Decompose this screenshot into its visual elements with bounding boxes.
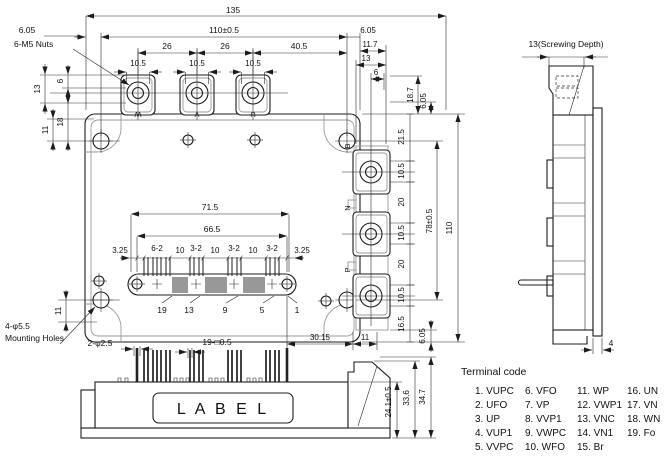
terminal-label-p: P xyxy=(343,267,352,272)
power-module-outline-drawing: W V U B N P xyxy=(0,0,671,460)
dim-front-347: 34.7 xyxy=(418,389,427,405)
note-mounting-holes-1: 4-φ5.5 xyxy=(5,321,30,331)
dim-bot-11: 11 xyxy=(361,333,370,342)
tc-8: 8. VVP1 xyxy=(525,414,562,425)
dim-rc-605t: 6.05 xyxy=(419,93,428,109)
dim-baseplate-thickness: 4 xyxy=(609,338,614,348)
dim-lc-11t: 11 xyxy=(41,125,50,134)
dim-overall-width: 135 xyxy=(226,5,240,15)
dim-pin-665: 66.5 xyxy=(204,224,221,234)
dim-row-62: 6-2 xyxy=(151,244,163,253)
side-view: 13(Screwing Depth) 4 xyxy=(519,39,615,354)
dim-edge-left: 6.05 xyxy=(19,25,36,35)
tc-17: 17. VN xyxy=(627,400,658,411)
dim-overall-height: 110 xyxy=(445,221,454,234)
dim-bot-605: 6.05 xyxy=(418,328,427,344)
dim-pin-715: 71.5 xyxy=(202,202,219,212)
dim-rc-215: 21.5 xyxy=(397,129,406,145)
pin-number-1: 1 xyxy=(295,305,300,315)
tc-15: 15. Br xyxy=(577,442,604,453)
dim-lc-11b: 11 xyxy=(54,306,63,315)
dim-rc-105a: 10.5 xyxy=(397,163,406,179)
side-housing xyxy=(553,115,593,330)
dim-guide-pins: 2-φ2.5 xyxy=(88,338,113,348)
dim-row-10a: 10 xyxy=(176,246,185,255)
dim-tr-117: 11.7 xyxy=(363,40,379,49)
tc-11: 11. WP xyxy=(577,386,609,397)
dim-rc-20a: 20 xyxy=(397,197,406,206)
label-text: L A B E L xyxy=(177,401,269,418)
note-mounting-holes-2: Mounting Holes xyxy=(5,333,64,343)
dim-rc-105b: 10.5 xyxy=(397,225,406,241)
tc-14: 14. VN1 xyxy=(577,428,614,439)
pin-number-9: 9 xyxy=(223,305,228,315)
tc-3: 3. UP xyxy=(475,414,500,425)
dim-row-32b: 3-2 xyxy=(228,244,240,253)
tc-12: 12. VWP1 xyxy=(577,400,622,411)
tc-1: 1. VUPC xyxy=(475,386,514,397)
dim-nut-w-3: 10.5 xyxy=(245,59,261,68)
dim-row-32a: 3-2 xyxy=(190,244,202,253)
tc-16: 16. UN xyxy=(627,386,658,397)
tc-19: 19. Fo xyxy=(627,428,656,439)
terminal-label-b: B xyxy=(343,143,352,148)
note-m5-nuts: 6-M5 Nuts xyxy=(14,39,53,49)
dim-nut-w-2: 10.5 xyxy=(189,59,205,68)
tc-6: 6. VFO xyxy=(525,386,557,397)
dim-pitch-wv: 26 xyxy=(162,41,172,51)
tc-7: 7. VP xyxy=(525,400,550,411)
side-baseplate xyxy=(593,108,602,336)
dim-rc-187: 18.7 xyxy=(406,87,415,103)
terminal-label-v: V xyxy=(194,110,199,119)
tc-2: 2. UFO xyxy=(475,400,507,411)
dim-u-to-hole: 40.5 xyxy=(291,41,308,51)
dim-row-10c: 10 xyxy=(249,246,258,255)
dim-front-336: 33.6 xyxy=(402,390,411,406)
front-left-cap xyxy=(81,390,95,428)
dim-rc-20b: 20 xyxy=(397,259,406,268)
tc-13: 13. VNC xyxy=(577,414,615,425)
dim-lc-6: 6 xyxy=(56,78,65,83)
pin-number-19: 19 xyxy=(157,305,167,315)
dim-pitch-vu: 26 xyxy=(220,41,230,51)
terminal-code-title: Terminal code xyxy=(461,366,527,378)
tc-5: 5. VVPC xyxy=(475,442,513,453)
dim-row-325b: 3.25 xyxy=(294,246,310,255)
dim-hole-pitch-v: 78±0.5 xyxy=(425,208,434,233)
terminal-code-table: Terminal code 1. VUPC 2. UFO 3. UP 4. VU… xyxy=(461,366,660,453)
terminal-label-u: U xyxy=(250,110,255,119)
baseplate xyxy=(81,428,390,438)
front-view: L A B E L 2-φ2.5 19-□0.5 24.1±0.5 33.6 3… xyxy=(81,337,436,438)
dim-pin-square: 19-□0.5 xyxy=(202,337,232,347)
dim-lc-18: 18 xyxy=(56,117,65,126)
drawing-canvas: W V U B N P xyxy=(0,0,671,460)
dim-screwing-depth: 13(Screwing Depth) xyxy=(528,39,603,49)
dim-tr-13: 13 xyxy=(362,54,371,63)
dim-tr-6: 6 xyxy=(374,68,379,77)
dim-row-32c: 3-2 xyxy=(266,244,278,253)
dim-bot-3015: 30.15 xyxy=(310,333,331,342)
pin-number-13: 13 xyxy=(184,305,194,315)
tc-10: 10. WFO xyxy=(525,442,565,453)
dim-front-241: 24.1±0.5 xyxy=(384,386,393,418)
terminal-label-w: W xyxy=(134,110,142,119)
terminal-label-n: N xyxy=(343,205,352,210)
dim-rc-165: 16.5 xyxy=(397,316,406,332)
tc-18: 18. WN xyxy=(627,414,660,425)
dim-rc-105c: 10.5 xyxy=(397,287,406,303)
dim-row-325a: 3.25 xyxy=(112,246,128,255)
dim-row-10b: 10 xyxy=(211,246,220,255)
dim-tr-605: 6.05 xyxy=(360,26,376,35)
dim-lc-13: 13 xyxy=(33,84,42,93)
pin-number-5: 5 xyxy=(260,305,265,315)
dim-hole-pitch-h: 110±0.5 xyxy=(209,25,239,35)
tc-9: 9. VWPC xyxy=(525,428,566,439)
dim-nut-w-1: 10.5 xyxy=(130,59,146,68)
tc-4: 4. VUP1 xyxy=(475,428,513,439)
